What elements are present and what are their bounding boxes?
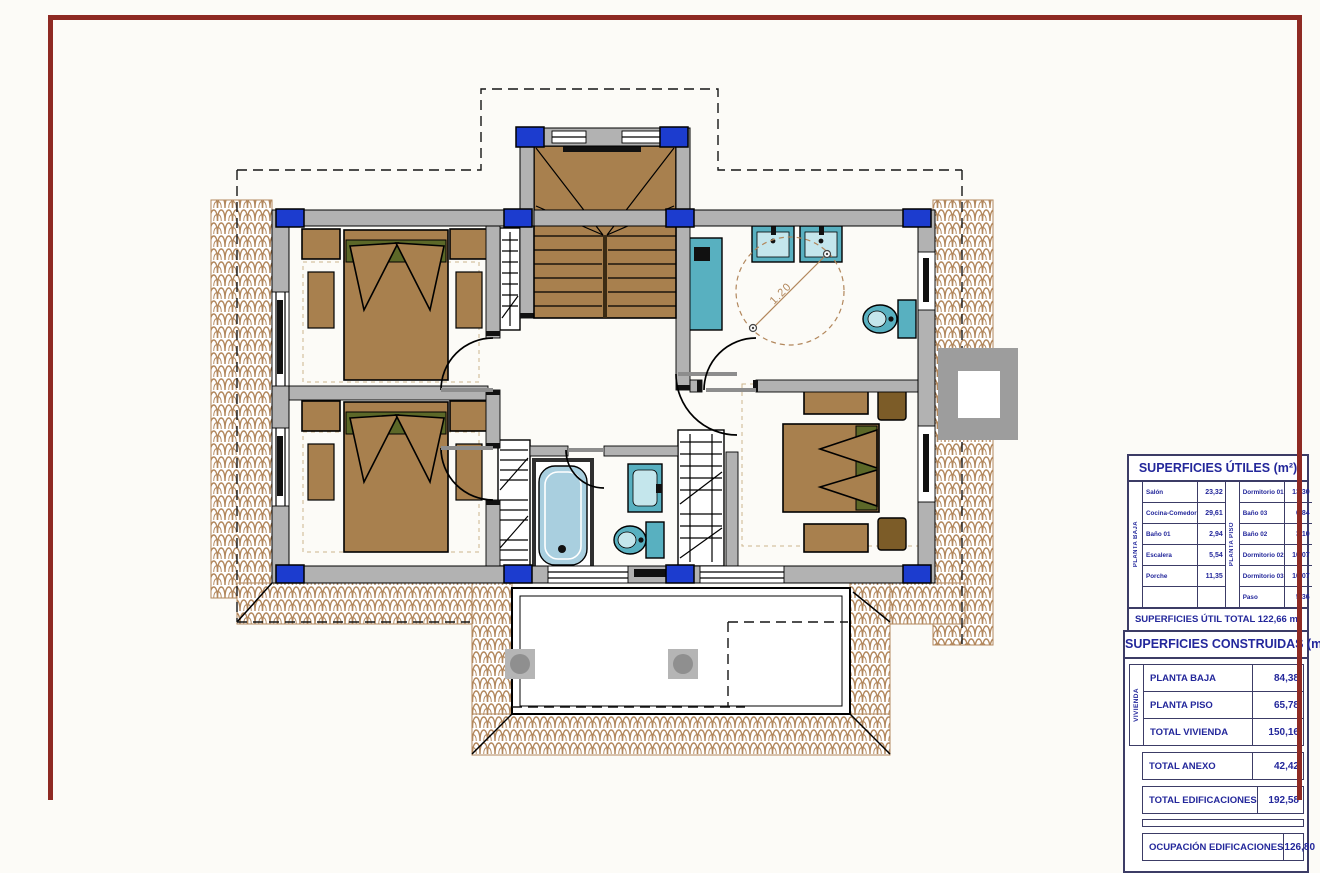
bench bbox=[804, 524, 868, 552]
table-row: Salón23,32 bbox=[1143, 482, 1225, 503]
table-row bbox=[1143, 587, 1225, 607]
sink bbox=[628, 464, 662, 512]
nightstand bbox=[302, 401, 340, 431]
closet bbox=[500, 228, 520, 330]
superficies-construidas-table: SUPERFICIES CONSTRUIDAS (m²) VIVIENDAPLA… bbox=[1123, 630, 1309, 873]
table-row: Porche11,35 bbox=[1143, 566, 1225, 587]
utiles-total: SUPERFICIES ÚTIL TOTAL 122,66 m² bbox=[1129, 607, 1307, 631]
sheet-frame-right bbox=[1297, 15, 1302, 800]
table-row: TOTAL ANEXO42,42 bbox=[1142, 752, 1304, 780]
utiles-group: PLANTA BAJASalón23,32Cocina-Comedor29,61… bbox=[1129, 482, 1225, 607]
roof-strip-left bbox=[211, 200, 272, 598]
utiles-title: SUPERFICIES ÚTILES (m²) bbox=[1129, 456, 1307, 482]
vivienda-block: VIVIENDAPLANTA BAJA84,38PLANTA PISO65,78… bbox=[1129, 664, 1304, 746]
roof-strip-bottom-right bbox=[890, 583, 965, 624]
closet bbox=[678, 430, 724, 566]
roof-strip-bottom-left bbox=[237, 583, 472, 624]
toilet bbox=[614, 522, 664, 558]
closet bbox=[498, 440, 530, 566]
sink bbox=[800, 226, 842, 262]
bed-dormitorio-01 bbox=[783, 388, 906, 552]
table-row: TOTAL VIVIENDA150,16 bbox=[1144, 719, 1303, 745]
table-row: PLANTA BAJA84,38 bbox=[1144, 665, 1303, 692]
turning-circle-label: 1.20 bbox=[768, 281, 794, 307]
porch bbox=[505, 588, 850, 714]
nightstand bbox=[878, 388, 906, 420]
bathtub bbox=[532, 458, 594, 572]
table-row: Baño 012,94 bbox=[1143, 524, 1225, 545]
side-table bbox=[456, 444, 482, 500]
staircase bbox=[534, 146, 676, 318]
table-row: PLANTA PISO65,78 bbox=[1144, 692, 1303, 719]
table-row: Escalera5,54 bbox=[1143, 545, 1225, 566]
superficies-utiles-table: SUPERFICIES ÚTILES (m²) PLANTA BAJASalón… bbox=[1127, 454, 1309, 633]
nightstand bbox=[302, 229, 340, 259]
chimney bbox=[938, 348, 1018, 440]
construidas-title: SUPERFICIES CONSTRUIDAS (m²) bbox=[1125, 632, 1307, 659]
bed-dormitorio-03 bbox=[302, 401, 488, 552]
table-row: OCUPACIÓN EDIFICACIONES126,80 bbox=[1142, 833, 1304, 861]
group-label: PLANTA PISO bbox=[1226, 482, 1240, 607]
group-label: VIVIENDA bbox=[1130, 665, 1144, 745]
bed-dormitorio-02 bbox=[302, 229, 488, 380]
group-label: PLANTA BAJA bbox=[1129, 482, 1143, 607]
side-table bbox=[308, 272, 334, 328]
door-arc bbox=[704, 338, 756, 390]
porch-roof-bottom bbox=[472, 714, 890, 755]
nightstand bbox=[450, 401, 488, 431]
nightstand bbox=[878, 518, 906, 550]
floor-plan: 1.20 bbox=[0, 0, 1320, 800]
sheet-frame-left bbox=[48, 15, 53, 800]
toilet bbox=[863, 300, 916, 338]
side-table bbox=[456, 272, 482, 328]
table-row: TOTAL EDIFICACIONES192,58 bbox=[1142, 786, 1304, 814]
sink bbox=[752, 226, 794, 262]
table-spacer bbox=[1142, 819, 1304, 827]
table-row: Cocina-Comedor29,61 bbox=[1143, 503, 1225, 524]
sheet-frame-top bbox=[48, 15, 1302, 20]
nightstand bbox=[450, 229, 488, 259]
side-table bbox=[308, 444, 334, 500]
